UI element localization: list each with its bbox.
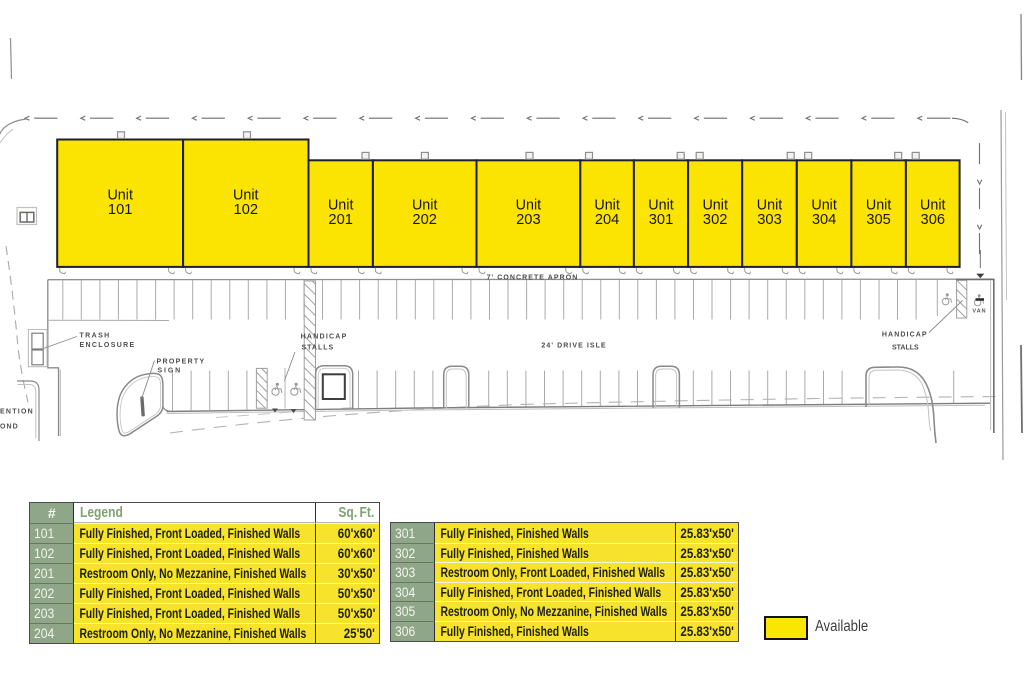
svg-text:ENTION: ENTION <box>0 409 33 416</box>
svg-text:24' DRIVE ISLE: 24' DRIVE ISLE <box>541 343 606 350</box>
svg-text:Unit: Unit <box>328 197 354 213</box>
svg-text:Unit: Unit <box>233 187 259 203</box>
svg-text:Unit: Unit <box>920 197 946 213</box>
svg-text:STALLS: STALLS <box>892 344 919 351</box>
svg-text:TRASH: TRASH <box>80 333 110 340</box>
svg-text:Unit: Unit <box>702 197 728 213</box>
svg-text:VAN: VAN <box>972 309 986 315</box>
svg-text:302: 302 <box>703 212 728 228</box>
svg-text:Unit: Unit <box>107 187 133 203</box>
svg-text:203: 203 <box>516 212 541 228</box>
svg-text:Unit: Unit <box>648 197 674 213</box>
svg-text:Unit: Unit <box>594 197 620 213</box>
svg-text:305: 305 <box>866 212 891 228</box>
svg-text:202: 202 <box>412 212 437 228</box>
svg-text:Unit: Unit <box>811 197 837 213</box>
svg-text:Unit: Unit <box>757 197 783 213</box>
svg-text:Unit: Unit <box>866 197 892 213</box>
svg-text:ENCLOSURE: ENCLOSURE <box>80 342 135 349</box>
svg-text:PROPERTY: PROPERTY <box>157 358 205 365</box>
svg-text:Unit: Unit <box>516 197 542 213</box>
svg-text:SIGN: SIGN <box>158 368 181 375</box>
svg-text:STALLS: STALLS <box>302 345 334 352</box>
svg-text:HANDICAP: HANDICAP <box>882 331 927 338</box>
svg-text:201: 201 <box>328 212 353 228</box>
svg-text:204: 204 <box>595 212 620 228</box>
svg-text:OND: OND <box>0 424 18 431</box>
svg-text:303: 303 <box>757 212 782 228</box>
svg-text:HANDICAP: HANDICAP <box>301 334 347 341</box>
svg-text:306: 306 <box>921 212 946 228</box>
svg-text:102: 102 <box>234 202 259 218</box>
svg-text:101: 101 <box>108 202 133 218</box>
svg-text:7' CONCRETE APRON: 7' CONCRETE APRON <box>487 275 578 282</box>
svg-text:301: 301 <box>649 212 674 228</box>
svg-text:Unit: Unit <box>412 197 438 213</box>
svg-text:304: 304 <box>812 212 837 228</box>
